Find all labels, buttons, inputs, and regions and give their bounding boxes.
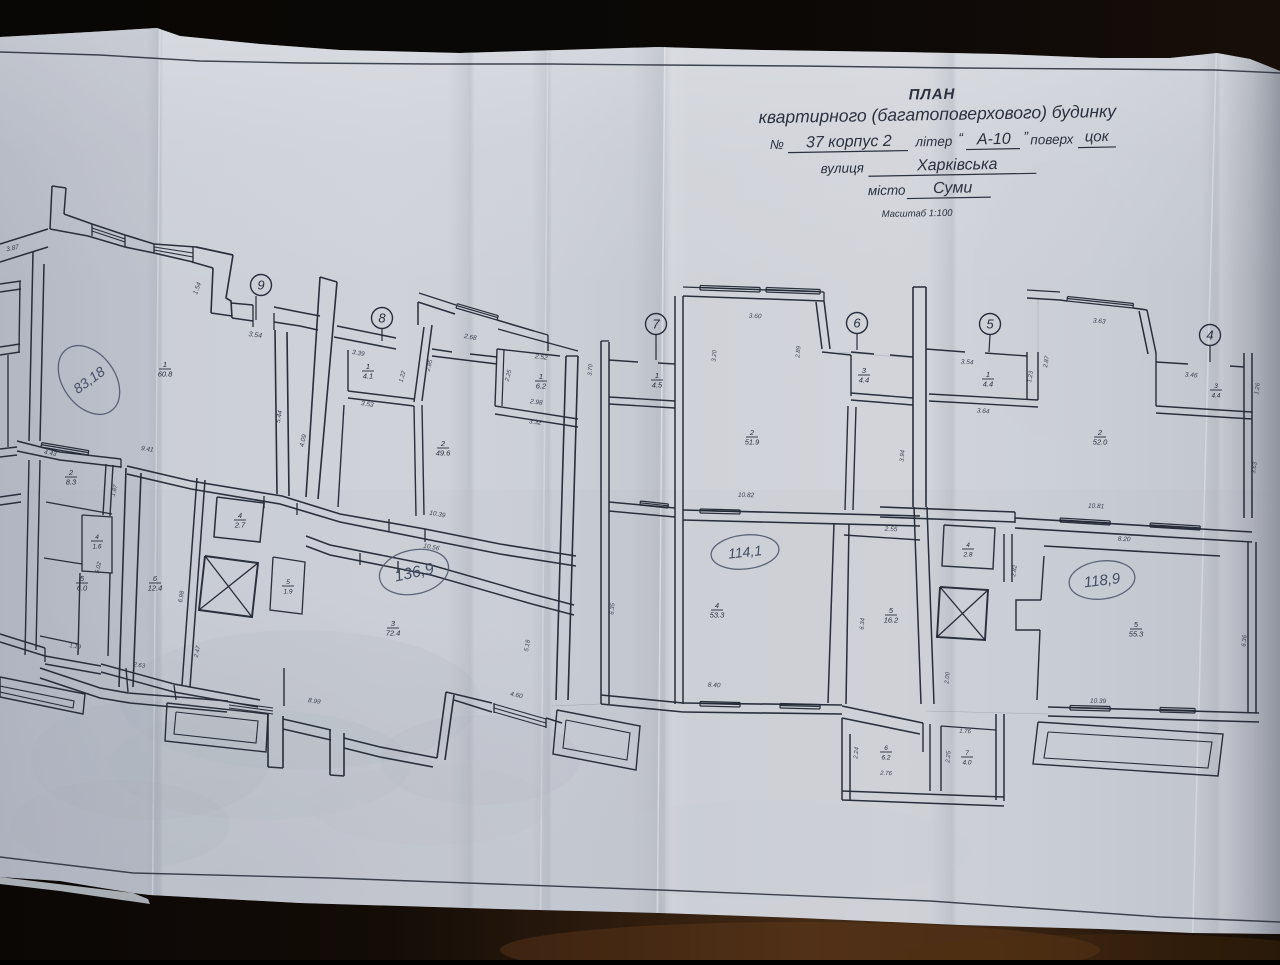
svg-text:10.82: 10.82 [738,492,755,500]
svg-text:4.4: 4.4 [983,379,993,388]
svg-text:4: 4 [1206,327,1213,342]
svg-text:8.20: 8.20 [1118,536,1131,544]
svg-text:2.7: 2.7 [234,520,246,529]
svg-text:6: 6 [853,315,861,330]
svg-text:місто: місто [868,183,906,199]
svg-text:6.2: 6.2 [536,381,547,390]
svg-text:1: 1 [366,362,370,371]
svg-text:55.3: 55.3 [1129,629,1144,638]
svg-text:12.4: 12.4 [148,583,163,592]
svg-text:1.76: 1.76 [959,729,972,735]
svg-text:поверх: поверх [1030,132,1075,148]
svg-text:4.4: 4.4 [1211,392,1220,399]
svg-text:3.54: 3.54 [961,359,974,367]
svg-text:72.4: 72.4 [386,628,401,637]
svg-text:49.6: 49.6 [436,448,451,457]
svg-text:Харківська: Харківська [916,156,998,174]
svg-text:8.40: 8.40 [708,682,721,690]
svg-text:6.34: 6.34 [860,617,867,630]
svg-text:6: 6 [884,745,888,752]
svg-text:4.1: 4.1 [363,371,373,380]
svg-text:3: 3 [1214,383,1218,390]
svg-text:6.35: 6.35 [610,602,617,615]
svg-text:10.39: 10.39 [1090,698,1107,706]
svg-text:1.9: 1.9 [283,588,292,595]
svg-text:3.20: 3.20 [712,349,719,362]
svg-text:2: 2 [68,468,74,477]
svg-text:8: 8 [378,310,386,325]
svg-text:9: 9 [257,277,264,292]
svg-text:51.9: 51.9 [745,437,760,446]
svg-text:3.70: 3.70 [588,363,595,376]
svg-text:5: 5 [286,579,290,586]
svg-text:4: 4 [966,542,970,549]
svg-text:7: 7 [965,750,969,757]
svg-text:10.81: 10.81 [1088,503,1105,511]
svg-text:Масштаб 1:100: Масштаб 1:100 [882,208,954,220]
svg-text:3.94: 3.94 [900,449,907,462]
svg-text:2.55: 2.55 [884,526,898,533]
svg-text:2.00: 2.00 [944,671,951,685]
svg-text:1: 1 [986,370,990,379]
svg-text:2.89: 2.89 [795,345,802,359]
svg-text:А-10: А-10 [976,131,1011,149]
svg-text:3.60: 3.60 [749,313,762,321]
svg-text:52.0: 52.0 [1093,437,1108,446]
svg-text:8.3: 8.3 [66,477,77,486]
svg-text:2.25: 2.25 [945,750,952,764]
svg-text:2.24: 2.24 [853,746,860,760]
svg-text:ПЛАН: ПЛАН [909,86,956,104]
svg-text:2: 2 [1097,428,1103,437]
svg-text:5: 5 [986,316,994,331]
svg-text:4.4: 4.4 [859,375,869,384]
svg-text:3.63: 3.63 [1093,317,1107,325]
svg-text:№: № [770,137,784,152]
svg-text:цок: цок [1085,128,1110,145]
svg-text:вулиця: вулиця [821,160,865,176]
svg-text:4: 4 [715,601,719,610]
svg-text:4: 4 [238,511,242,520]
svg-text:7: 7 [652,316,660,331]
svg-text:16.2: 16.2 [884,615,899,624]
svg-text:6.0: 6.0 [77,583,88,592]
svg-text:1: 1 [655,371,659,380]
svg-text:3.64: 3.64 [977,408,990,416]
svg-text:Суми: Суми [933,179,973,197]
svg-text:2.8: 2.8 [962,551,972,558]
svg-text:6.36: 6.36 [1242,634,1249,647]
svg-text:2: 2 [440,439,446,448]
svg-text:2: 2 [749,428,755,437]
svg-text:6.2: 6.2 [881,754,890,761]
svg-text:3.46: 3.46 [1185,372,1198,380]
svg-text:1.6: 1.6 [92,543,101,550]
svg-text:60.8: 60.8 [158,369,173,378]
svg-text:4: 4 [95,534,99,541]
svg-text:37 корпус 2: 37 корпус 2 [806,133,892,151]
svg-text:2.76: 2.76 [879,771,893,777]
svg-text:1: 1 [539,372,543,381]
svg-text:4.5: 4.5 [652,380,663,389]
svg-text:1: 1 [163,360,167,369]
svg-text:4.0: 4.0 [962,759,971,766]
svg-text:літер: літер [914,134,953,150]
svg-text:53.3: 53.3 [710,610,725,619]
